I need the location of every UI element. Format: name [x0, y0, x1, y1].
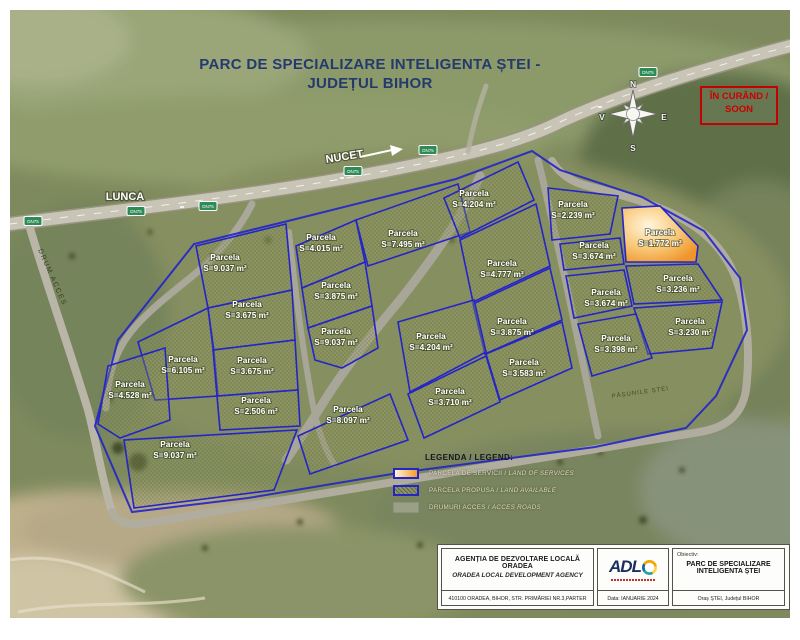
divider — [673, 590, 784, 591]
objective-line2: INTELIGENTA ȘTEI — [673, 568, 784, 575]
legend-label: DRUMURI ACCES / ACCES ROADS — [429, 504, 541, 511]
site-plan-svg: ParcelaS=9.037 m²ParcelaS=3.675 m²Parcel… — [10, 10, 790, 618]
divider — [598, 590, 668, 591]
compass-s: S — [630, 143, 636, 153]
legend-rows: PARCELA DE SERVICII / LAND OF SERVICESPA… — [393, 468, 608, 513]
agency-name-en: ORADEA LOCAL DEVELOPMENT AGENCY — [442, 572, 593, 579]
adlo-logo: ADL — [598, 557, 668, 577]
route-badge: DN75 — [419, 146, 437, 155]
title-block: AGENȚIA DE DEZVOLTARE LOCALĂ ORADEA ORAD… — [437, 544, 790, 610]
coming-soon-line1: ÎN CURÂND / — [702, 91, 776, 104]
route-badge: DN75 — [344, 167, 362, 176]
page-title-line1: PARC DE SPECIALIZARE INTELIGENTA ȘTEI - — [60, 56, 680, 75]
legend-label: PARCELA PROPUSA / LAND AVAILABLE — [429, 487, 556, 494]
legend-swatch-road — [393, 502, 419, 513]
route-badge: DN75 — [24, 217, 42, 226]
agency-name-ro: AGENȚIA DE DEZVOLTARE LOCALĂ ORADEA — [442, 556, 593, 570]
legend-swatch-available — [393, 485, 419, 496]
legend: LEGENDA / LEGEND: PARCELA DE SERVICII / … — [393, 453, 608, 519]
objective-line1: PARC DE SPECIALIZARE — [673, 561, 784, 568]
compass-e: E — [661, 112, 667, 122]
adlo-logo-text: ADL — [609, 557, 641, 577]
page-title: PARC DE SPECIALIZARE INTELIGENTA ȘTEI - … — [60, 56, 680, 94]
document-page: ParcelaS=9.037 m²ParcelaS=3.675 m²Parcel… — [0, 0, 800, 640]
compass-v: V — [599, 112, 605, 122]
coming-soon-line2: SOON — [702, 104, 776, 117]
satellite-map: ParcelaS=9.037 m²ParcelaS=3.675 m²Parcel… — [10, 10, 790, 618]
route-badge: DN75 — [199, 202, 217, 211]
objective-location: Oraș ȘTEI, Județul BIHOR — [673, 596, 784, 602]
town-label-lunca: LUNCA — [106, 191, 145, 203]
svg-text:DN75: DN75 — [422, 148, 434, 153]
page-title-line2: JUDEȚUL BIHOR — [60, 75, 680, 94]
divider — [442, 590, 593, 591]
agency-address: 410100 ORADEA, BIHOR, STR. PRIMĂRIEI NR.… — [442, 596, 593, 602]
svg-text:DN75: DN75 — [347, 169, 359, 174]
title-block-logo-cell: ADL Data: IANUARIE 2024 — [597, 548, 669, 606]
objective-label: Obiectiv: — [677, 552, 784, 558]
svg-text:DN75: DN75 — [27, 219, 39, 224]
adlo-logo-circle-icon — [642, 560, 657, 575]
coming-soon-badge: ÎN CURÂND / SOON — [700, 86, 778, 125]
legend-item: PARCELA PROPUSA / LAND AVAILABLE — [393, 485, 608, 496]
date-value: Data: IANUARIE 2024 — [598, 596, 668, 602]
svg-text:DN75: DN75 — [130, 209, 142, 214]
adlo-logo-tagline — [611, 579, 655, 581]
legend-item: DRUMURI ACCES / ACCES ROADS — [393, 502, 608, 513]
title-block-objective-cell: Obiectiv: PARC DE SPECIALIZARE INTELIGEN… — [672, 548, 785, 606]
route-badge: DN75 — [127, 207, 145, 216]
svg-text:DN75: DN75 — [202, 204, 214, 209]
legend-label: PARCELA DE SERVICII / LAND OF SERVICES — [429, 470, 574, 477]
legend-title: LEGENDA / LEGEND: — [425, 453, 608, 462]
title-block-agency-cell: AGENȚIA DE DEZVOLTARE LOCALĂ ORADEA ORAD… — [441, 548, 594, 606]
legend-swatch-service — [393, 468, 419, 479]
legend-item: PARCELA DE SERVICII / LAND OF SERVICES — [393, 468, 608, 479]
